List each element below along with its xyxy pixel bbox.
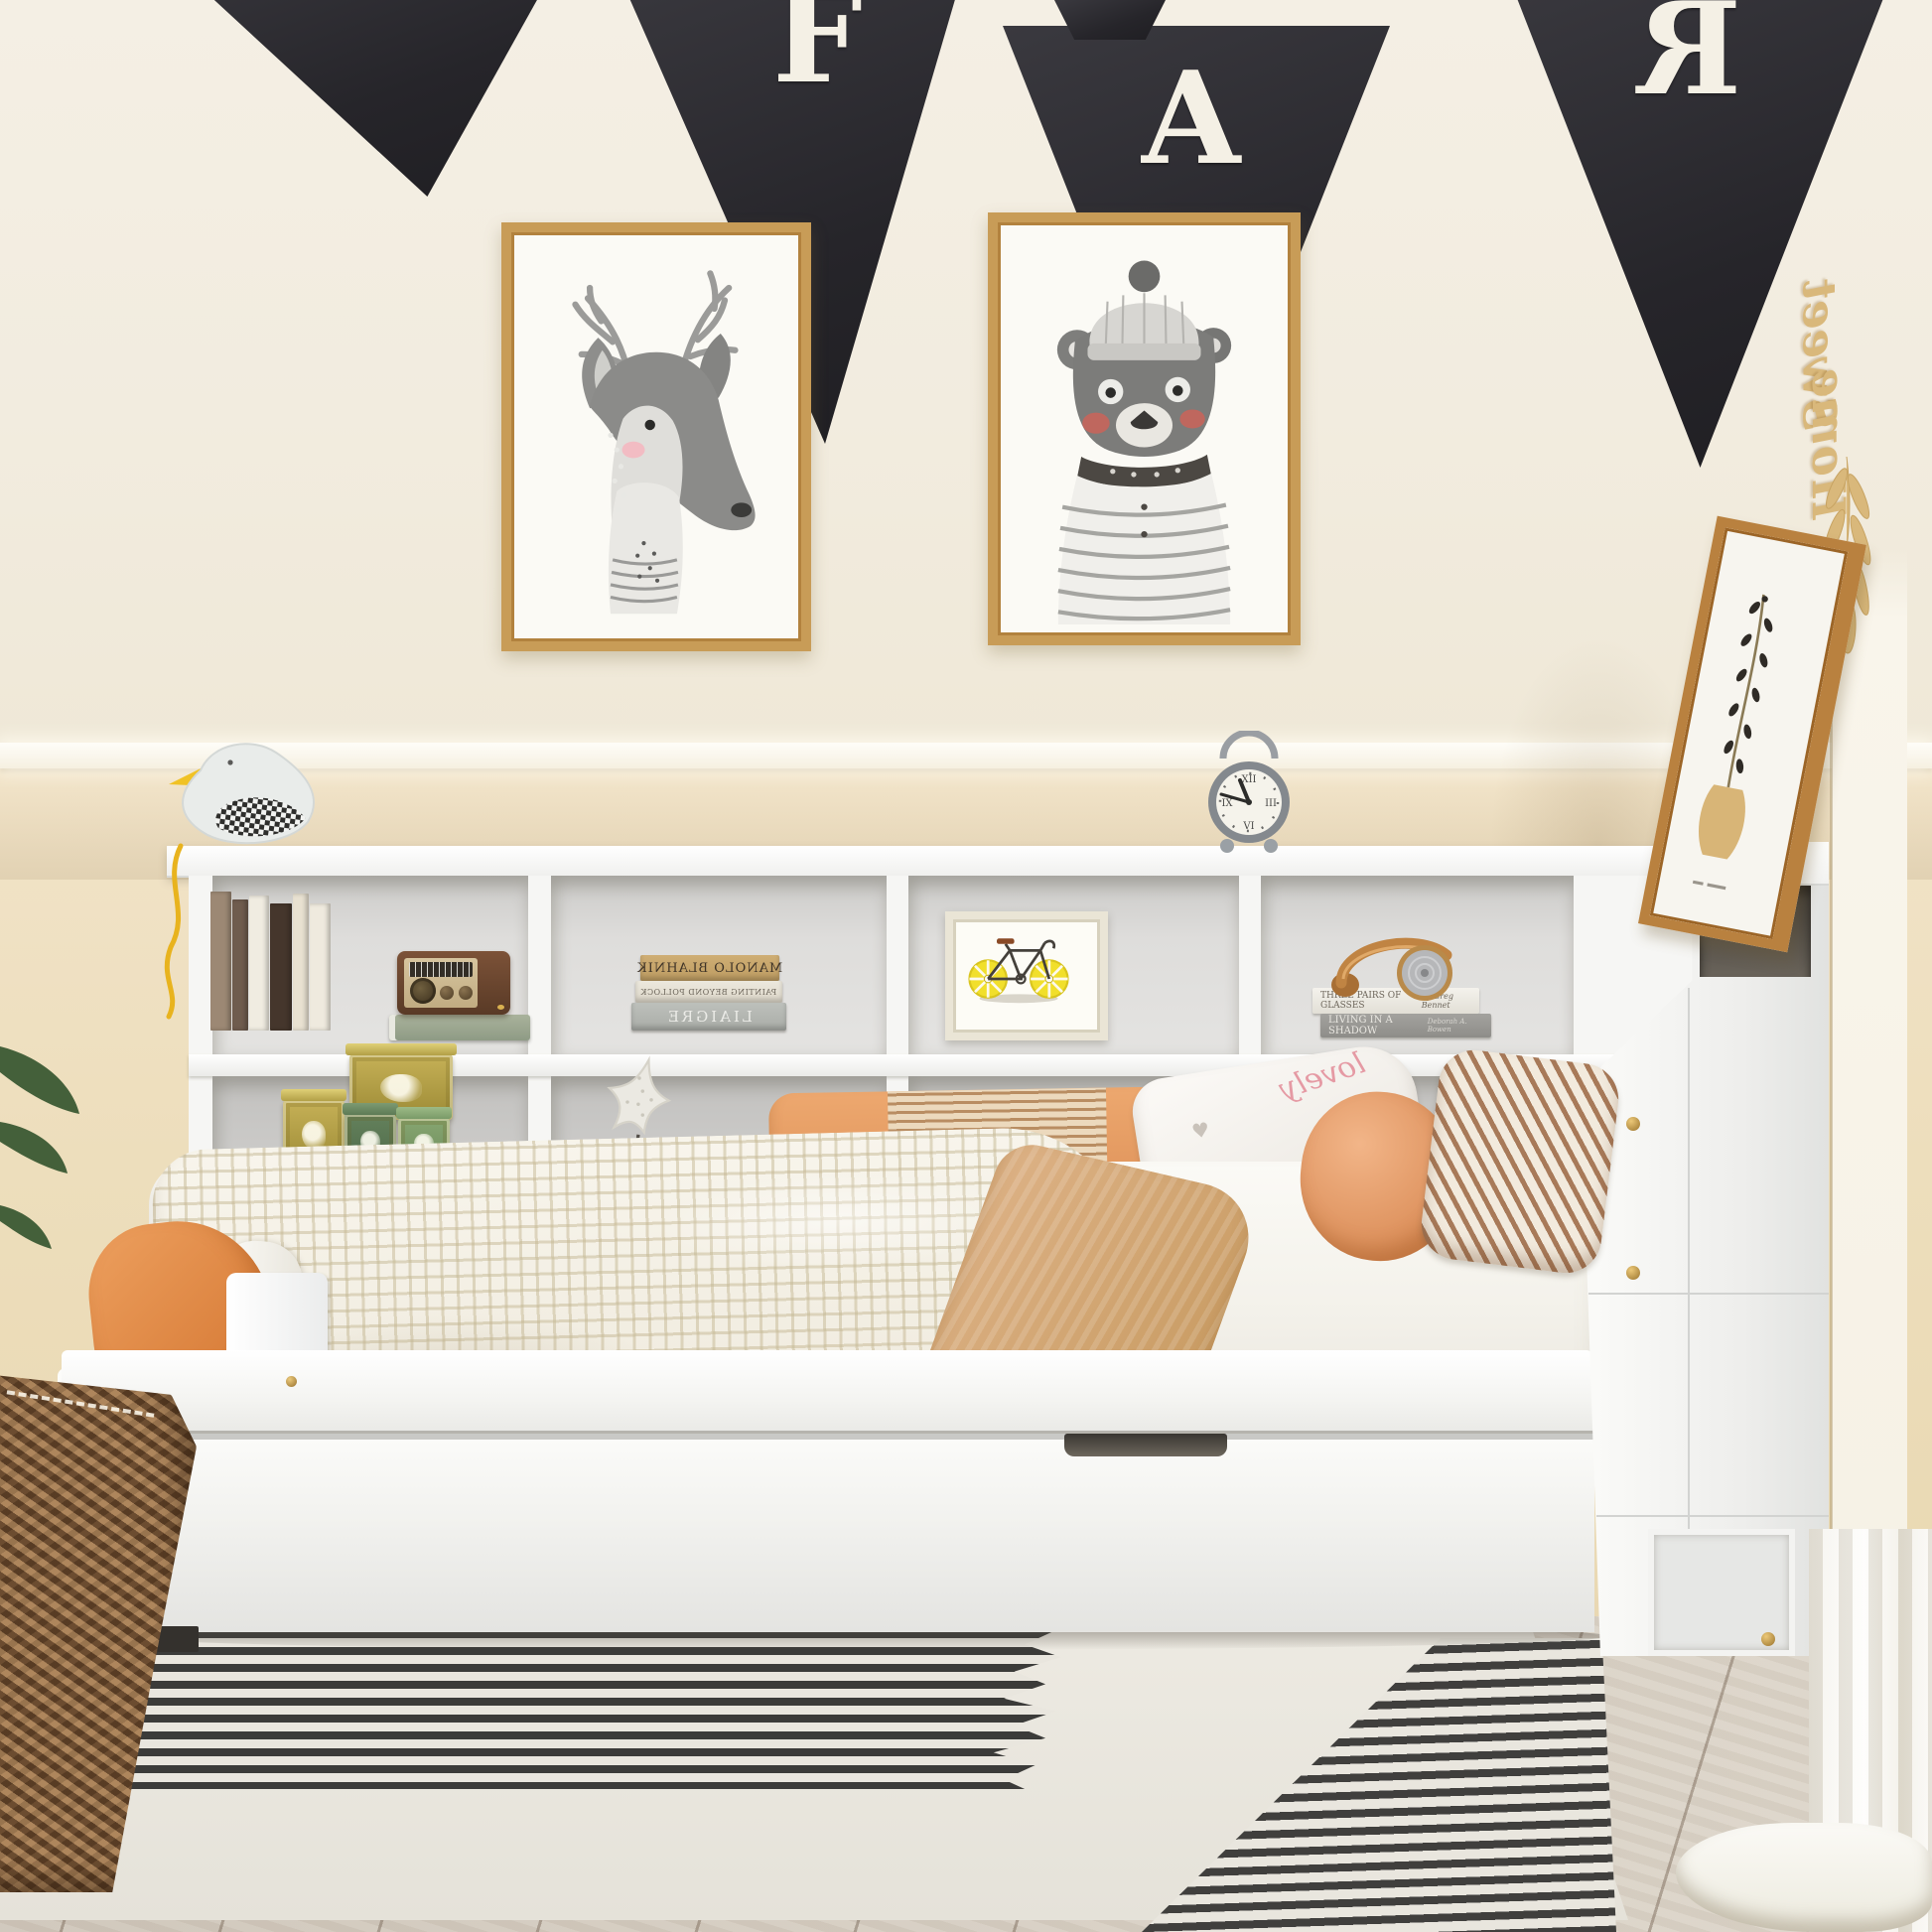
bear-pompom	[1129, 261, 1161, 293]
book-spine	[210, 892, 231, 1031]
trundle-handle-cutout[interactable]	[1064, 1434, 1227, 1456]
book-author: Deborah A. Bowen	[1428, 1018, 1483, 1034]
deer-cheek	[622, 442, 645, 459]
svg-text:III: III	[1265, 798, 1277, 809]
book-spine	[232, 899, 248, 1031]
book-manolo: MANOLO BLAHNIK	[640, 955, 779, 981]
bear-hat-brim	[1087, 344, 1200, 360]
bear-cheek-left	[1082, 413, 1109, 434]
art-caption-marks	[1693, 881, 1726, 891]
clock-foot	[1220, 839, 1234, 853]
clock-center	[1246, 799, 1252, 805]
book-row	[210, 890, 336, 1031]
earcup-center	[1421, 969, 1429, 977]
clock-handle	[1223, 733, 1275, 759]
bike-saddle	[997, 938, 1015, 944]
deer-nose	[731, 502, 752, 517]
clock-foot	[1264, 839, 1278, 853]
art-vase	[1693, 783, 1749, 862]
book-title: MANOLO BLAHNIK	[636, 961, 782, 976]
radio-face	[404, 958, 478, 1008]
book-spine	[270, 903, 292, 1031]
banner-letter: A	[1142, 56, 1240, 183]
bear-pupil-right	[1173, 385, 1183, 396]
book-living-shadow: LIVING IN A SHADOW Deborah A. Bowen	[1320, 1014, 1491, 1037]
deer-artwork-frame	[501, 222, 811, 651]
vintage-radio	[397, 951, 510, 1015]
seagull-figurine	[157, 735, 347, 860]
tower-panel-seam	[1596, 1515, 1829, 1517]
radio-logo	[497, 1005, 504, 1010]
wall-corner	[1832, 548, 1907, 1644]
brass-knob[interactable]	[1626, 1266, 1640, 1280]
book-title: PAINTING BEYOND POLLOCK	[640, 988, 776, 997]
bicycle-print-frame	[945, 911, 1108, 1040]
book-liaigre: LIAIGRE	[631, 1003, 786, 1031]
rug-stripe-block-left	[28, 1630, 1066, 1789]
radio-knob	[440, 986, 454, 1000]
banner-letter: F	[772, 0, 863, 101]
book-spine	[310, 903, 331, 1031]
heart-icon: ♥	[1190, 1117, 1211, 1144]
bear-artwork-frame	[988, 212, 1301, 645]
trundle-drawer[interactable]	[147, 1434, 1594, 1632]
bike-handlebar	[1044, 941, 1053, 948]
bird-eye	[227, 759, 232, 764]
flat-book	[389, 1015, 530, 1040]
alarm-clock: XII III VI IX	[1201, 731, 1297, 858]
tower-panel-seam	[1588, 1293, 1829, 1295]
brass-knob[interactable]	[1626, 1117, 1640, 1131]
yellow-cord	[147, 840, 210, 1023]
svg-text:IX: IX	[1221, 798, 1233, 809]
bear-shirt	[1058, 474, 1230, 624]
plant-leaves	[0, 1031, 91, 1291]
book-title: LIVING IN A SHADOW	[1328, 1015, 1428, 1036]
radio-speaker	[410, 978, 436, 1004]
headphones	[1323, 925, 1472, 1005]
book-spine	[249, 896, 269, 1031]
svg-text:VI: VI	[1242, 821, 1254, 832]
lemon-bicycle-art	[953, 919, 1084, 1017]
svg-text:XII: XII	[1241, 774, 1256, 785]
deer-eye	[645, 420, 655, 430]
radio-knob	[459, 986, 473, 1000]
brass-knob[interactable]	[1761, 1632, 1775, 1646]
bedroom-scene: F A R	[0, 0, 1932, 1932]
radio-dial-display	[409, 962, 473, 977]
striped-pillow	[1418, 1046, 1622, 1278]
book-spine	[293, 894, 309, 1031]
book-pollock: PAINTING BEYOND POLLOCK	[635, 981, 782, 1003]
banner-letter-mirrored: R	[1636, 0, 1741, 113]
bear-pupil-left	[1105, 387, 1116, 398]
bookcase-top-board	[167, 846, 1696, 878]
brass-screw	[286, 1376, 297, 1387]
art-stem	[1726, 595, 1766, 787]
starfish-body	[601, 1054, 677, 1139]
bear-cheek-right	[1179, 409, 1204, 428]
deer-chest	[609, 483, 683, 614]
daybed-side-rail	[62, 1350, 1592, 1434]
bed-foot	[157, 1626, 199, 1652]
bear-watercolor	[1008, 232, 1281, 625]
deer-watercolor	[521, 242, 791, 631]
book-title: LIAIGRE	[665, 1008, 753, 1026]
